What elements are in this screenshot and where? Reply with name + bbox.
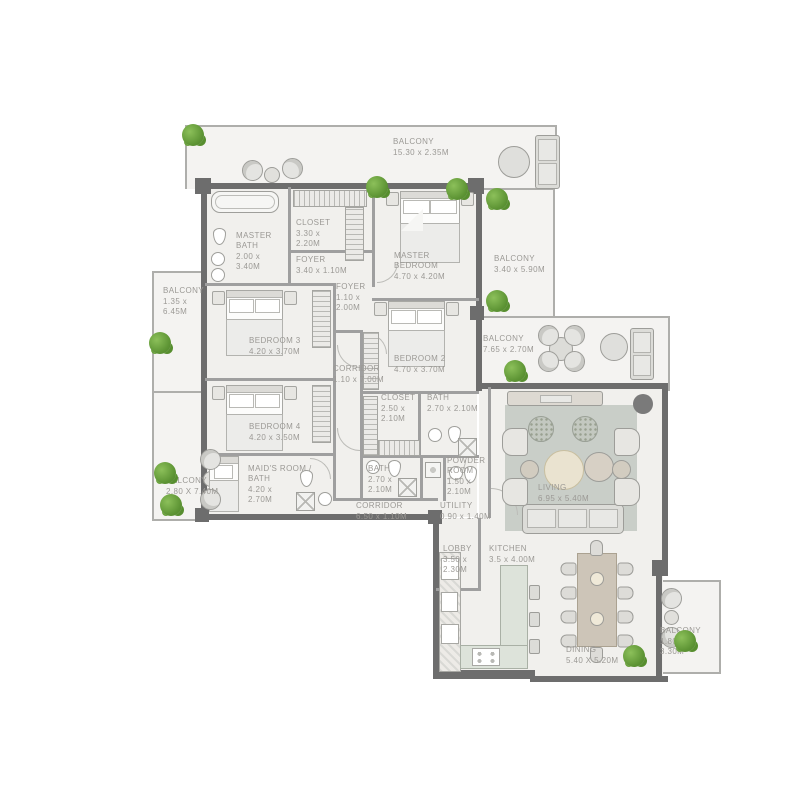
label-maids-room: MAID'S ROOM / BATH 4.20 x 2.70M bbox=[248, 464, 328, 505]
plant bbox=[623, 645, 645, 667]
label-powder-room: POWDER ROOM 1.50 x 2.10M bbox=[447, 456, 493, 497]
room-name: BATH bbox=[427, 393, 479, 403]
room-name: BALCONY bbox=[483, 334, 547, 344]
label-bedroom-4: BEDROOM 4 4.20 x 3.50M bbox=[249, 422, 339, 443]
plant bbox=[674, 630, 696, 652]
room-dims: 1.10 x 7.00M bbox=[333, 375, 397, 385]
stool bbox=[529, 585, 540, 600]
sink bbox=[428, 428, 442, 442]
label-foyer-2: FOYER 1.10 x 2.00M bbox=[336, 282, 376, 313]
label-utility: UTILITY 0.90 x 1.40M bbox=[440, 501, 504, 522]
room-dims: 3.40 x 5.90M bbox=[494, 265, 558, 275]
plant bbox=[149, 332, 171, 354]
room-name: LOBBY bbox=[443, 544, 483, 554]
balcony-table bbox=[664, 610, 679, 625]
room-dims: 15.30 x 2.35M bbox=[393, 148, 503, 158]
room-name: BALCONY bbox=[163, 286, 205, 296]
plant bbox=[154, 462, 176, 484]
label-balcony-top: BALCONY 15.30 x 2.35M bbox=[393, 137, 503, 158]
dining-chair bbox=[561, 587, 577, 600]
side-table bbox=[584, 452, 614, 482]
label-bath-upper: BATH 2.70 x 2.10M bbox=[427, 393, 479, 414]
room-dims: 6.50 x 1.10M bbox=[356, 512, 432, 522]
room-dims: 2.70 x 2.10M bbox=[368, 475, 404, 495]
label-master-bath: MASTER BATH 2.00 x 3.40M bbox=[236, 231, 290, 272]
label-living: LIVING 6.95 x 5.40M bbox=[538, 483, 614, 504]
nightstand bbox=[284, 386, 297, 400]
wardrobe bbox=[345, 207, 364, 261]
room-dims: 4.70 x 4.20M bbox=[394, 272, 456, 282]
plant bbox=[160, 494, 182, 516]
wall-east-living bbox=[662, 383, 668, 575]
balcony-sofa bbox=[630, 328, 654, 380]
balcony-chair bbox=[564, 351, 585, 372]
room-name: BATH bbox=[368, 464, 408, 474]
armchair bbox=[614, 478, 640, 506]
sink bbox=[211, 268, 225, 282]
side-table bbox=[612, 460, 631, 479]
room-name: BALCONY bbox=[166, 476, 242, 486]
oven bbox=[441, 624, 459, 644]
sofa bbox=[522, 504, 624, 534]
nightstand bbox=[212, 386, 225, 400]
room-name: FOYER bbox=[336, 282, 376, 292]
stool bbox=[529, 612, 540, 627]
wall-pier bbox=[195, 508, 209, 522]
balcony-sofa bbox=[535, 135, 560, 189]
partition bbox=[333, 283, 336, 501]
floor-plan: BALCONY 15.30 x 2.35M MASTER BATH 2.00 x… bbox=[0, 0, 800, 800]
balcony-chair bbox=[564, 325, 585, 346]
plant bbox=[366, 176, 388, 198]
label-bedroom-2: BEDROOM 2 4.70 x 3.70M bbox=[394, 354, 484, 375]
room-dims: 7.65 x 2.70M bbox=[483, 345, 547, 355]
balcony-table bbox=[600, 333, 628, 361]
nightstand bbox=[386, 192, 399, 206]
room-dims: 1.50 x 2.10M bbox=[447, 477, 483, 497]
room-dims: 6.95 x 5.40M bbox=[538, 494, 614, 504]
nightstand bbox=[284, 291, 297, 305]
balcony-chair bbox=[661, 588, 682, 609]
balcony-table bbox=[264, 167, 280, 183]
room-dims: 3.30 x 2.20M bbox=[296, 229, 332, 249]
armchair bbox=[614, 428, 640, 456]
table-decor bbox=[590, 612, 604, 626]
plant bbox=[182, 124, 204, 146]
room-name: CORRIDOR bbox=[333, 364, 397, 374]
room-name: FOYER bbox=[296, 255, 366, 265]
label-kitchen: KITCHEN 3.5 x 4.00M bbox=[489, 544, 565, 565]
wall-pier bbox=[652, 560, 668, 576]
room-name: MASTER BATH bbox=[236, 231, 290, 251]
partition bbox=[333, 330, 363, 333]
washer bbox=[425, 462, 441, 478]
wall-pier bbox=[470, 306, 484, 320]
room-dims: 2.00 x 3.40M bbox=[236, 252, 272, 272]
room-name: MASTER BEDROOM bbox=[394, 251, 456, 271]
armchair bbox=[502, 478, 528, 506]
partition bbox=[420, 455, 423, 501]
label-closet-master: CLOSET 3.30 x 2.20M bbox=[296, 218, 346, 249]
partition bbox=[205, 283, 336, 286]
room-name: POWDER ROOM bbox=[447, 456, 493, 476]
room-name: CORRIDOR bbox=[356, 501, 432, 511]
wardrobe bbox=[378, 440, 420, 456]
plant bbox=[486, 188, 508, 210]
label-lobby: LOBBY 3.50 x 2.30M bbox=[443, 544, 483, 575]
partition bbox=[443, 455, 446, 501]
stool bbox=[529, 639, 540, 654]
label-balcony-left-lower: BALCONY 2.80 X 7.40M bbox=[166, 476, 242, 497]
room-dims: 1.10 x 2.00M bbox=[336, 293, 372, 313]
nightstand bbox=[446, 302, 459, 316]
room-dims: 4.70 x 3.70M bbox=[394, 365, 484, 375]
room-dims: 4.20 x 2.70M bbox=[248, 485, 284, 505]
room-dims: 2.70 x 2.10M bbox=[427, 404, 479, 414]
label-bedroom-3: BEDROOM 3 4.20 x 3.70M bbox=[249, 336, 339, 357]
label-balcony-right-upper: BALCONY 3.40 x 5.90M bbox=[494, 254, 558, 275]
bathtub bbox=[211, 191, 279, 213]
room-dims: 4.20 x 3.70M bbox=[249, 347, 339, 357]
balcony-chair bbox=[242, 160, 263, 181]
nightstand bbox=[212, 291, 225, 305]
dining-chair bbox=[618, 563, 634, 576]
dining-chair bbox=[618, 611, 634, 624]
room-name: BALCONY bbox=[393, 137, 503, 147]
wall-south-dining bbox=[530, 676, 668, 682]
room-name: CLOSET bbox=[381, 393, 423, 403]
label-foyer-master: FOYER 3.40 x 1.10M bbox=[296, 255, 366, 276]
room-name: CLOSET bbox=[296, 218, 346, 228]
room-name: LIVING bbox=[538, 483, 614, 493]
pouf bbox=[528, 416, 554, 442]
plant bbox=[486, 290, 508, 312]
wall-north bbox=[201, 183, 482, 189]
label-balcony-left-upper: BALCONY 1.35 x 6.45M bbox=[163, 286, 205, 317]
room-dims: 3.5 x 4.00M bbox=[489, 555, 565, 565]
column bbox=[633, 394, 653, 414]
wall-east-bedroom2 bbox=[476, 312, 482, 391]
room-dims: 1.35 x 6.45M bbox=[163, 297, 199, 317]
balcony-chair bbox=[200, 449, 221, 470]
label-closet-2: CLOSET 2.50 x 2.10M bbox=[381, 393, 423, 424]
dining-chair bbox=[561, 611, 577, 624]
label-balcony-right-mid: BALCONY 7.65 x 2.70M bbox=[483, 334, 547, 355]
label-corridor-vertical: CORRIDOR 1.10 x 7.00M bbox=[333, 364, 397, 385]
label-corridor-horizontal: CORRIDOR 6.50 x 1.10M bbox=[356, 501, 432, 522]
room-dims: 0.90 x 1.40M bbox=[440, 512, 504, 522]
plant bbox=[504, 360, 526, 382]
wall-pier bbox=[195, 178, 211, 194]
table-decor bbox=[590, 572, 604, 586]
room-dims: 4.20 x 3.50M bbox=[249, 433, 339, 443]
wardrobe bbox=[293, 190, 367, 207]
label-master-bedroom: MASTER BEDROOM 4.70 x 4.20M bbox=[394, 251, 456, 282]
side-table bbox=[520, 460, 539, 479]
room-name: BEDROOM 2 bbox=[394, 354, 484, 364]
wardrobe bbox=[363, 396, 378, 456]
room-name: BALCONY bbox=[494, 254, 558, 264]
partition bbox=[205, 378, 336, 381]
partition bbox=[372, 187, 375, 287]
dining-chair bbox=[618, 587, 634, 600]
wall-north-living bbox=[476, 383, 668, 389]
wall-east-dining bbox=[656, 569, 662, 681]
label-bath-lower: BATH 2.70 x 2.10M bbox=[368, 464, 408, 495]
room-name: MAID'S ROOM / BATH bbox=[248, 464, 328, 484]
room-dims: 3.40 x 1.10M bbox=[296, 266, 366, 276]
shower bbox=[458, 438, 477, 457]
cooktop bbox=[472, 648, 500, 666]
armchair bbox=[502, 428, 528, 456]
tv-console bbox=[507, 391, 603, 406]
room-dims: 2.50 x 2.10M bbox=[381, 404, 417, 424]
dining-table bbox=[577, 553, 617, 647]
plant bbox=[446, 178, 468, 200]
dining-chair bbox=[590, 540, 603, 556]
balcony-chair bbox=[282, 158, 303, 179]
room-name: BEDROOM 3 bbox=[249, 336, 339, 346]
pouf bbox=[572, 416, 598, 442]
room-name: UTILITY bbox=[440, 501, 504, 511]
sink bbox=[211, 252, 225, 266]
room-name: KITCHEN bbox=[489, 544, 565, 554]
room-name: BEDROOM 4 bbox=[249, 422, 339, 432]
kitchen-sink bbox=[441, 592, 458, 612]
room-dims: 3.50 x 2.30M bbox=[443, 555, 479, 575]
